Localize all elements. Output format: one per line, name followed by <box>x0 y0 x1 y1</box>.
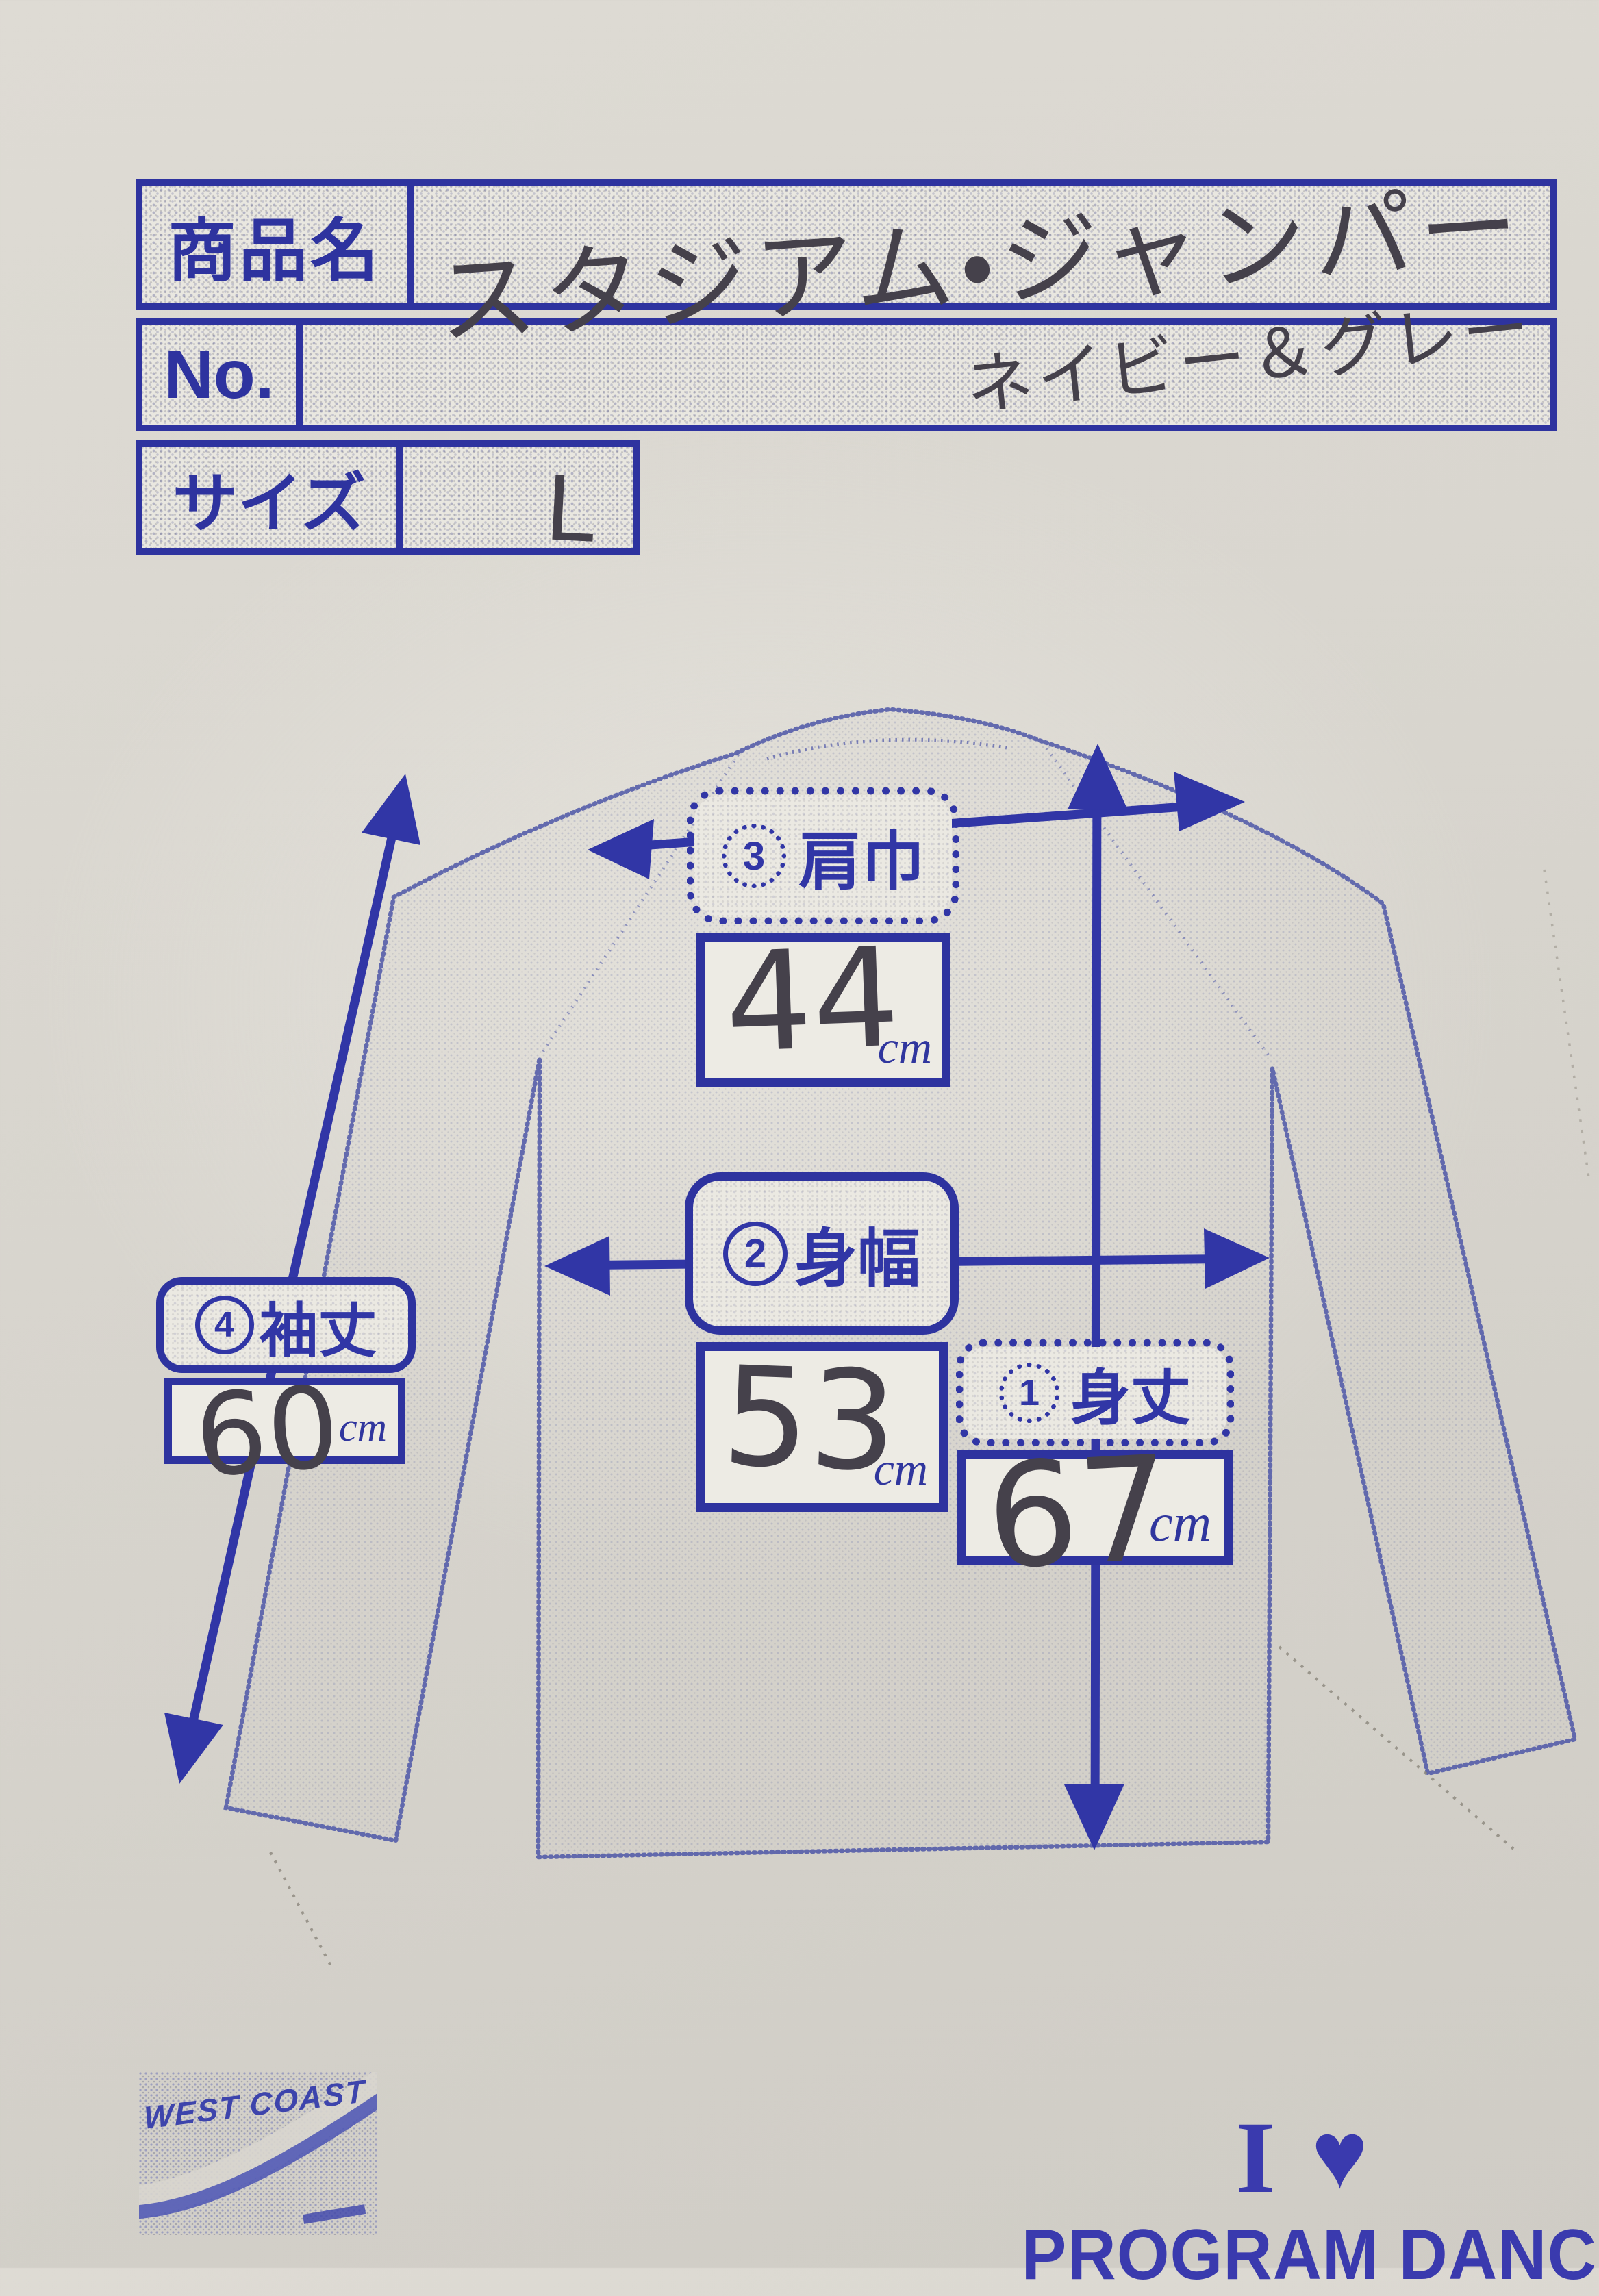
product-name-label-cell: 商品名 <box>142 186 414 303</box>
slogan-i: I <box>1235 2101 1275 2215</box>
pencil-crease-left-cuff <box>270 1852 333 1971</box>
body-width-unit: cm <box>874 1442 928 1496</box>
size-label-cell: サイズ <box>142 447 403 548</box>
sleeve-length-number: 4 <box>195 1296 254 1354</box>
sleeve-length-value-box: 60 cm <box>164 1378 405 1464</box>
size-label: サイズ <box>173 451 366 545</box>
body-length-value-box: 67 cm <box>957 1450 1233 1565</box>
body-width-value-box: 53 cm <box>696 1342 948 1512</box>
shoulder-width-unit: cm <box>878 1020 932 1074</box>
slogan-block: I ♥ PROGRAM DANCE <box>1007 2104 1597 2296</box>
shoulder-width-label-box: 3 肩巾 <box>687 787 959 924</box>
number-label: No. <box>164 336 274 414</box>
body-length-name: 身丈 <box>1070 1350 1191 1437</box>
slogan-line1: I ♥ <box>1007 2104 1597 2206</box>
size-value-cell <box>403 447 633 548</box>
body-length-value: 67 <box>983 1424 1174 1602</box>
shoulder-width-value: 44 <box>722 918 902 1084</box>
body-length-unit: cm <box>1149 1492 1211 1554</box>
body-width-name: 身幅 <box>794 1208 920 1299</box>
sleeve-length-value: 60 <box>191 1361 344 1502</box>
product-name-label: 商品名 <box>168 195 381 294</box>
body-length-number: 1 <box>999 1363 1059 1423</box>
heart-icon: ♥ <box>1311 2101 1368 2208</box>
pencil-crease-right-2 <box>1544 870 1589 1178</box>
west-coast-logo: WEST COAST <box>139 2072 377 2235</box>
body-width-value: 53 <box>720 1337 899 1503</box>
shoulder-width-value-box: 44 cm <box>696 933 950 1087</box>
slogan-line2: PROGRAM DANCE <box>1022 2215 1583 2296</box>
sleeve-length-name: 袖丈 <box>260 1283 377 1368</box>
body-width-number: 2 <box>723 1222 788 1286</box>
shoulder-width-number: 3 <box>722 824 786 888</box>
body-width-label-box: 2 身幅 <box>685 1172 959 1335</box>
sleeve-length-unit: cm <box>339 1404 387 1451</box>
shoulder-width-name: 肩巾 <box>798 811 924 902</box>
number-label-cell: No. <box>142 325 303 425</box>
size-handwriting: L <box>542 456 597 563</box>
sleeve-length-label-box: 4 袖丈 <box>156 1277 416 1373</box>
